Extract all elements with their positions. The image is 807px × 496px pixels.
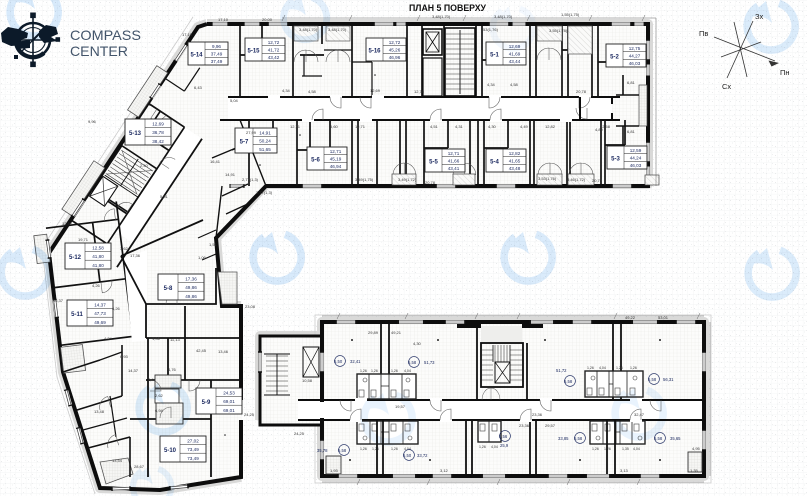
svg-text:12,72: 12,72 — [389, 40, 401, 45]
svg-text:16,37: 16,37 — [53, 298, 64, 303]
svg-text:24,25: 24,25 — [244, 412, 255, 417]
svg-text:41,80: 41,80 — [92, 254, 104, 259]
svg-text:13,48: 13,48 — [94, 409, 105, 414]
svg-text:14,91: 14,91 — [225, 172, 236, 177]
svg-text:13,54: 13,54 — [112, 458, 123, 463]
svg-text:17,10: 17,10 — [182, 32, 193, 37]
svg-text:5,50: 5,50 — [334, 359, 343, 364]
svg-text:1,26: 1,26 — [360, 447, 367, 451]
svg-text:45,26: 45,26 — [389, 48, 401, 53]
svg-text:4,34: 4,34 — [487, 82, 496, 87]
svg-text:6,81: 6,81 — [627, 80, 636, 85]
svg-text:8,44: 8,44 — [148, 377, 157, 382]
svg-text:12,58: 12,58 — [92, 246, 104, 251]
svg-text:47,73: 47,73 — [94, 311, 106, 316]
svg-text:1,26: 1,26 — [391, 369, 398, 373]
svg-text:1,06: 1,06 — [198, 255, 207, 260]
svg-text:53,01: 53,01 — [658, 315, 669, 320]
svg-text:49,21: 49,21 — [391, 330, 402, 335]
svg-text:41,80: 41,80 — [92, 263, 104, 268]
svg-text:5-10: 5-10 — [164, 448, 177, 454]
svg-text:14,37: 14,37 — [94, 303, 106, 308]
svg-text:5,58: 5,58 — [574, 436, 583, 441]
svg-text:32,47: 32,47 — [634, 412, 645, 417]
svg-text:5,01: 5,01 — [160, 194, 169, 199]
svg-text:51,72: 51,72 — [556, 368, 567, 373]
svg-text:14,91: 14,91 — [259, 130, 271, 135]
svg-text:50,24: 50,24 — [259, 139, 271, 144]
svg-text:12,75: 12,75 — [414, 89, 425, 94]
svg-text:1,55(1,75): 1,55(1,75) — [561, 12, 580, 17]
svg-text:5-12: 5-12 — [69, 255, 82, 261]
svg-text:20,78: 20,78 — [592, 178, 603, 183]
svg-text:73,49: 73,49 — [187, 456, 199, 461]
svg-text:20,00: 20,00 — [262, 17, 273, 22]
svg-text:13,46: 13,46 — [218, 349, 229, 354]
svg-text:5,58: 5,58 — [338, 448, 347, 453]
svg-text:14,37: 14,37 — [128, 368, 139, 373]
svg-text:5,58: 5,58 — [408, 360, 417, 365]
svg-text:12,82: 12,82 — [509, 151, 521, 156]
svg-text:5-6: 5-6 — [311, 158, 320, 164]
svg-text:1,26: 1,26 — [587, 366, 594, 370]
svg-text:29,89: 29,89 — [368, 330, 379, 335]
svg-text:9,96: 9,96 — [212, 44, 221, 49]
svg-text:25,9: 25,9 — [500, 443, 509, 448]
svg-text:3,55(1,78): 3,55(1,78) — [549, 28, 568, 33]
svg-text:35,65: 35,65 — [670, 436, 681, 441]
svg-text:33,85: 33,85 — [558, 436, 569, 441]
svg-text:12,82: 12,82 — [545, 124, 556, 129]
svg-text:1,51: 1,51 — [209, 242, 218, 247]
svg-text:4,95: 4,95 — [692, 446, 701, 451]
svg-text:12,71: 12,71 — [290, 124, 301, 129]
svg-text:5-9: 5-9 — [202, 400, 211, 406]
svg-text:1,26: 1,26 — [592, 447, 599, 451]
svg-text:1,35: 1,35 — [622, 447, 629, 451]
svg-text:12,71: 12,71 — [355, 124, 366, 129]
svg-text:51,73: 51,73 — [424, 360, 435, 365]
svg-text:41,72: 41,72 — [268, 48, 280, 53]
svg-text:6,93: 6,93 — [120, 354, 129, 359]
svg-text:46,03: 46,03 — [629, 61, 641, 66]
svg-text:12,69: 12,69 — [370, 88, 381, 93]
svg-text:9,96: 9,96 — [88, 119, 97, 124]
svg-text:CENTER: CENTER — [70, 43, 128, 59]
svg-text:29,57: 29,57 — [545, 423, 556, 428]
svg-text:3,12: 3,12 — [440, 468, 449, 473]
svg-text:20,78: 20,78 — [576, 89, 587, 94]
svg-text:COMPASS: COMPASS — [70, 27, 141, 43]
svg-text:23,36: 23,36 — [532, 412, 543, 417]
svg-text:51,65: 51,65 — [259, 147, 271, 152]
svg-text:1,93: 1,93 — [330, 468, 339, 473]
svg-text:27,02: 27,02 — [187, 439, 199, 444]
svg-text:12,50: 12,50 — [62, 221, 73, 226]
svg-text:49,69: 49,69 — [94, 320, 106, 325]
svg-text:4,30: 4,30 — [413, 341, 422, 346]
svg-text:1,35: 1,35 — [690, 468, 699, 473]
svg-text:10,58: 10,58 — [302, 378, 313, 383]
svg-text:37,49: 37,49 — [211, 59, 223, 64]
svg-text:4,04: 4,04 — [404, 447, 411, 451]
svg-text:41,66: 41,66 — [448, 159, 460, 164]
svg-text:4,34: 4,34 — [282, 88, 291, 93]
svg-text:20,78: 20,78 — [425, 180, 436, 185]
svg-text:2,50: 2,50 — [140, 163, 149, 168]
svg-text:Пн: Пн — [780, 68, 790, 77]
svg-text:4,26: 4,26 — [112, 306, 121, 311]
svg-text:69,01: 69,01 — [223, 408, 235, 413]
svg-text:1,26: 1,26 — [616, 366, 623, 370]
svg-text:16,41: 16,41 — [210, 159, 221, 164]
svg-text:Пв: Пв — [699, 29, 708, 38]
svg-text:5,58: 5,58 — [648, 377, 657, 382]
svg-text:5-15: 5-15 — [247, 49, 260, 55]
svg-text:11,13: 11,13 — [170, 337, 180, 342]
svg-text:4,58: 4,58 — [308, 89, 317, 94]
svg-text:6,43: 6,43 — [194, 85, 203, 90]
svg-text:43,48: 43,48 — [509, 166, 521, 171]
svg-text:45,19: 45,19 — [330, 157, 342, 162]
svg-text:42,45: 42,45 — [196, 348, 207, 353]
svg-text:24,25: 24,25 — [294, 431, 305, 436]
svg-text:3,49(1,72): 3,49(1,72) — [398, 177, 417, 182]
svg-text:5,56: 5,56 — [499, 434, 508, 439]
svg-text:5-11: 5-11 — [71, 312, 83, 318]
svg-text:Зх: Зх — [755, 12, 764, 21]
svg-text:Сх: Сх — [722, 82, 731, 91]
svg-text:56,31: 56,31 — [663, 377, 674, 382]
svg-text:4,04: 4,04 — [404, 369, 411, 373]
svg-text:49,86: 49,86 — [185, 285, 197, 290]
svg-text:12,71: 12,71 — [330, 149, 342, 154]
svg-text:3,53(1,76): 3,53(1,76) — [538, 176, 557, 181]
svg-text:46,03: 46,03 — [630, 163, 642, 168]
svg-text:4,58: 4,58 — [510, 82, 519, 87]
svg-text:12,58: 12,58 — [600, 124, 611, 129]
svg-text:23,36: 23,36 — [519, 423, 530, 428]
svg-text:1,26: 1,26 — [479, 445, 486, 449]
svg-text:5-7: 5-7 — [240, 140, 249, 146]
svg-text:43,42: 43,42 — [268, 55, 280, 60]
svg-text:4,30: 4,30 — [488, 124, 497, 129]
svg-text:3,48(1,70): 3,48(1,70) — [432, 14, 451, 19]
svg-text:36,78: 36,78 — [152, 130, 164, 135]
svg-text:5-13: 5-13 — [129, 131, 142, 137]
svg-text:17,10: 17,10 — [218, 17, 229, 22]
svg-text:5-5: 5-5 — [429, 160, 438, 166]
svg-text:3,48(1,70): 3,48(1,70) — [328, 27, 347, 32]
svg-text:44,24: 44,24 — [630, 156, 642, 161]
svg-text:49,22: 49,22 — [625, 315, 636, 320]
svg-text:4,26: 4,26 — [92, 283, 101, 288]
svg-text:12,59: 12,59 — [630, 148, 642, 153]
svg-text:3,48(1,70): 3,48(1,70) — [299, 27, 318, 32]
svg-text:4,51: 4,51 — [430, 124, 439, 129]
svg-text:46,96: 46,96 — [389, 55, 401, 60]
svg-text:23,08: 23,08 — [245, 304, 256, 309]
svg-text:69,01: 69,01 — [223, 399, 235, 404]
svg-text:5,50: 5,50 — [403, 453, 412, 458]
svg-text:4,76: 4,76 — [168, 367, 177, 372]
svg-text:5,60: 5,60 — [330, 124, 339, 129]
svg-text:5-3: 5-3 — [611, 157, 620, 163]
svg-text:46,94: 46,94 — [330, 164, 342, 169]
svg-text:12,72: 12,72 — [268, 40, 280, 45]
svg-text:38,42: 38,42 — [152, 139, 164, 144]
svg-text:4,04: 4,04 — [599, 366, 606, 370]
svg-text:12,69: 12,69 — [152, 122, 164, 127]
svg-text:28,67: 28,67 — [134, 464, 145, 469]
svg-text:5-14: 5-14 — [190, 53, 203, 59]
svg-text:2,77(1,3): 2,77(1,3) — [256, 190, 273, 195]
svg-text:4,31: 4,31 — [455, 124, 464, 129]
svg-text:32,41: 32,41 — [350, 359, 361, 364]
svg-text:1,06: 1,06 — [152, 336, 161, 341]
svg-text:12,71: 12,71 — [448, 151, 460, 156]
svg-text:37,49: 37,49 — [211, 52, 223, 57]
svg-text:5-16: 5-16 — [368, 49, 381, 55]
svg-text:3,62: 3,62 — [120, 246, 129, 251]
svg-text:5-4: 5-4 — [490, 160, 499, 166]
svg-text:17,36: 17,36 — [185, 277, 197, 282]
svg-text:3,46(1,72): 3,46(1,72) — [567, 177, 586, 182]
svg-text:43,41: 43,41 — [448, 166, 460, 171]
svg-text:41,69: 41,69 — [509, 52, 521, 57]
svg-text:5-2: 5-2 — [610, 55, 619, 61]
svg-text:5,58: 5,58 — [654, 436, 663, 441]
svg-text:1,26: 1,26 — [360, 369, 367, 373]
svg-text:35,78: 35,78 — [317, 448, 328, 453]
svg-text:5,58: 5,58 — [564, 379, 573, 384]
svg-text:6,81: 6,81 — [627, 129, 636, 134]
svg-text:4,49: 4,49 — [520, 124, 529, 129]
svg-text:ПЛАН 5 ПОВЕРХУ: ПЛАН 5 ПОВЕРХУ — [409, 3, 486, 14]
svg-text:41,65: 41,65 — [509, 159, 521, 164]
svg-text:5-8: 5-8 — [164, 286, 173, 292]
svg-text:4,34: 4,34 — [104, 336, 113, 341]
svg-text:5-1: 5-1 — [490, 53, 499, 59]
svg-text:5,04: 5,04 — [230, 98, 239, 103]
svg-text:3,13: 3,13 — [620, 468, 629, 473]
svg-text:33,72: 33,72 — [417, 453, 428, 458]
svg-text:4,04: 4,04 — [491, 445, 498, 449]
svg-text:27,99: 27,99 — [246, 130, 257, 135]
svg-text:24,53: 24,53 — [223, 391, 235, 396]
svg-text:6,94: 6,94 — [155, 408, 164, 413]
svg-text:1,26: 1,26 — [371, 369, 378, 373]
svg-text:1,26: 1,26 — [630, 366, 637, 370]
svg-text:19,71: 19,71 — [78, 237, 89, 242]
svg-text:43,44: 43,44 — [509, 59, 521, 64]
svg-text:3,49(1,75): 3,49(1,75) — [355, 177, 374, 182]
svg-text:17,36: 17,36 — [130, 253, 141, 258]
svg-text:73,49: 73,49 — [187, 447, 199, 452]
svg-text:49,86: 49,86 — [185, 294, 197, 299]
svg-text:12,75: 12,75 — [629, 46, 641, 51]
svg-text:44,27: 44,27 — [629, 54, 641, 59]
svg-text:4,04: 4,04 — [633, 447, 640, 451]
svg-text:1,26: 1,26 — [391, 447, 398, 451]
svg-text:2,77(1,3): 2,77(1,3) — [242, 177, 259, 182]
